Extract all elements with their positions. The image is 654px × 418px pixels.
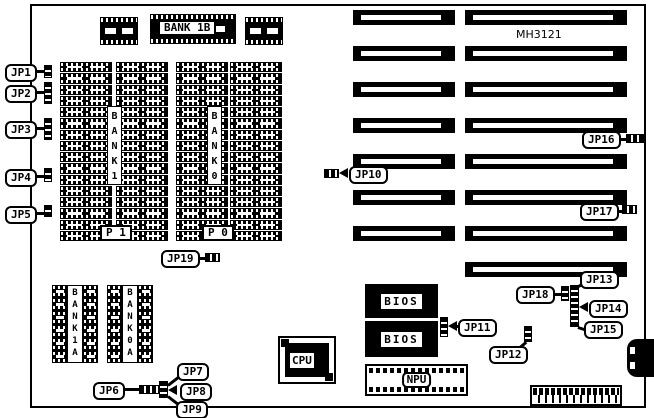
memory-chip-group (100, 17, 138, 45)
dip-chip-icon (138, 325, 153, 337)
jp16-label: JP16 (582, 131, 621, 149)
expansion-slot (465, 226, 627, 241)
jp2-label: JP2 (5, 85, 37, 103)
jp6-pointer (125, 388, 139, 391)
dip-chip-icon (116, 152, 168, 162)
memory-chip-group (245, 17, 283, 45)
dip-chip-icon (176, 73, 228, 83)
dip-chip-icon (176, 85, 228, 95)
dip-chip-icon (230, 220, 282, 230)
dip-chip-icon (116, 107, 168, 117)
expansion-slot (353, 46, 455, 61)
bios-top-label: BIOS (381, 294, 422, 309)
dip-chip-icon (116, 186, 168, 196)
p1-label: P 1 (100, 225, 132, 241)
bank1a-chips (52, 285, 67, 363)
jp10-label: JP10 (349, 166, 388, 184)
bank0-label: B A N K 0 (207, 106, 222, 185)
bank1a-module: B A N K 1 A (52, 285, 98, 363)
dip-chip-icon (60, 96, 112, 106)
dip-chip-icon (138, 311, 153, 323)
dip-chip-icon (116, 175, 168, 185)
bios-chip-top: BIOS (365, 284, 438, 318)
dip-chip-icon (230, 62, 282, 72)
jp4-jumper (44, 168, 52, 182)
jp2-jumper (44, 82, 52, 104)
dip-chip-icon (60, 186, 112, 196)
dip-chip-icon (107, 351, 122, 363)
motherboard-diagram: BANK 1B B A N K 1 B A N K 0 P 1 P 0 JP1 … (0, 0, 654, 418)
dip-chip-icon (230, 175, 282, 185)
bank0a-label: B A N K 0 A (122, 285, 138, 363)
dip-chip-icon (107, 285, 122, 297)
jp12-label: JP12 (489, 346, 528, 364)
dip-chip-icon (230, 197, 282, 207)
jp14-arrow-icon (579, 302, 588, 312)
dip-chip-icon (60, 141, 112, 151)
dram-column (230, 62, 282, 241)
jp8-arrow-icon (168, 385, 177, 395)
expansion-slot (353, 10, 455, 25)
slot-column-left (353, 10, 455, 241)
jp18-label: JP18 (516, 286, 555, 304)
dip-chip-icon (138, 338, 153, 350)
dip-chip-icon (52, 325, 67, 337)
dip-chip-icon (230, 85, 282, 95)
dip-chip-icon (116, 62, 168, 72)
jp16-jumper (626, 134, 644, 143)
dip-chip-icon (230, 163, 282, 173)
dip-chip-icon (116, 73, 168, 83)
dip-chip-icon (230, 208, 282, 218)
dip-chip-icon (52, 338, 67, 350)
dip-chip-icon (107, 325, 122, 337)
dip-chip-icon (245, 17, 283, 45)
dip-chip-icon (83, 298, 98, 310)
dram-column (116, 62, 168, 241)
dip-chip-icon (176, 186, 228, 196)
dip-chip-icon (52, 298, 67, 310)
bank0a-module: B A N K 0 A (107, 285, 153, 363)
jp9-label: JP9 (176, 401, 208, 418)
dip-chip-icon (60, 208, 112, 218)
bank1a-label: B A N K 1 A (67, 285, 83, 363)
npu-socket: NPU (365, 364, 468, 396)
dram-column (60, 62, 112, 241)
jp17-label: JP17 (580, 203, 619, 221)
dip-chip-icon (107, 338, 122, 350)
dip-chip-icon (176, 197, 228, 207)
dip-chip-icon (60, 107, 112, 117)
jp12-jumper (524, 326, 532, 342)
dip-chip-icon (83, 285, 98, 297)
jp3-label: JP3 (5, 121, 37, 139)
jp17-jumper (622, 205, 637, 214)
bank1b-label: BANK 1B (158, 20, 216, 36)
keyboard-connector (627, 339, 654, 377)
jp19-label: JP19 (161, 250, 200, 268)
bank0a-chips (107, 285, 122, 363)
dip-chip-icon (60, 197, 112, 207)
dip-chip-icon (230, 118, 282, 128)
dip-chip-icon (116, 118, 168, 128)
dip-chip-icon (116, 163, 168, 173)
cpu-socket: CPU (278, 336, 336, 384)
bios-bottom-label: BIOS (381, 332, 422, 347)
expansion-slot (465, 154, 627, 169)
dip-chip-icon (116, 85, 168, 95)
dip-chip-icon (230, 107, 282, 117)
bank1-label: B A N K 1 (107, 106, 122, 185)
dip-chip-icon (230, 130, 282, 140)
cpu-label: CPU (289, 352, 315, 369)
dip-chip-icon (52, 285, 67, 297)
dip-chip-icon (138, 298, 153, 310)
expansion-slot (465, 82, 627, 97)
dip-chip-icon (83, 338, 98, 350)
jp5-jumper (44, 205, 52, 217)
dip-chip-icon (230, 141, 282, 151)
dip-chip-icon (116, 96, 168, 106)
dip-chip-icon (52, 351, 67, 363)
expansion-slot (353, 226, 455, 241)
dip-chip-icon (60, 152, 112, 162)
jp4-label: JP4 (5, 169, 37, 187)
dip-chip-icon (83, 351, 98, 363)
dip-chip-icon (176, 208, 228, 218)
expansion-slot (353, 118, 455, 133)
jp3-jumper (44, 118, 52, 140)
dip-chip-icon (230, 96, 282, 106)
jp7-label: JP7 (177, 363, 209, 381)
jp10-arrow-icon (339, 168, 348, 178)
dip-chip-icon (138, 285, 153, 297)
dip-chip-icon (230, 152, 282, 162)
dip-chip-icon (230, 231, 282, 241)
expansion-slot (465, 10, 627, 25)
expansion-slot (353, 82, 455, 97)
dip-chip-icon (83, 325, 98, 337)
dip-chip-icon (107, 298, 122, 310)
dip-chip-icon (116, 197, 168, 207)
dip-chip-icon (230, 73, 282, 83)
dip-chip-icon (60, 85, 112, 95)
jp8-label: JP8 (180, 383, 212, 401)
p0-label: P 0 (202, 225, 234, 241)
expansion-slot (465, 46, 627, 61)
dip-chip-icon (116, 130, 168, 140)
jp19-jumper (205, 253, 220, 262)
board-model-label: MH3121 (516, 28, 562, 41)
expansion-slot (353, 190, 455, 205)
dip-chip-icon (60, 62, 112, 72)
cpu-chip: CPU (285, 343, 329, 377)
jp18-jumper (561, 286, 569, 301)
jp10-jumper (324, 169, 339, 178)
jp13-label: JP13 (580, 271, 619, 289)
jp1-jumper (44, 65, 52, 78)
dip-chip-icon (116, 208, 168, 218)
jp1-label: JP1 (5, 64, 37, 82)
dip-chip-icon (60, 163, 112, 173)
jp14-label: JP14 (589, 300, 628, 318)
dip-chip-icon (116, 141, 168, 151)
bios-chip-bottom: BIOS (365, 321, 438, 357)
dip-chip-icon (176, 96, 228, 106)
jp11-jumper (440, 317, 448, 337)
dip-chip-icon (230, 186, 282, 196)
jp15-label: JP15 (584, 321, 623, 339)
jp6-label: JP6 (93, 382, 125, 400)
dip-chip-icon (60, 118, 112, 128)
jp5-label: JP5 (5, 206, 37, 224)
dip-chip-icon (138, 351, 153, 363)
dip-chip-icon (52, 311, 67, 323)
dip-chip-icon (60, 130, 112, 140)
dip-chip-icon (107, 311, 122, 323)
dip-chip-icon (60, 175, 112, 185)
bank0a-chips (138, 285, 153, 363)
dip-chip-icon (100, 17, 138, 45)
dip-chip-icon (60, 73, 112, 83)
dip-chip-icon (83, 311, 98, 323)
bank1a-chips (83, 285, 98, 363)
dip-chip-icon (176, 62, 228, 72)
npu-label: NPU (402, 372, 432, 388)
jp11-label: JP11 (458, 319, 497, 337)
jp13-14-15-jumper (570, 285, 579, 327)
power-connector (530, 385, 622, 406)
